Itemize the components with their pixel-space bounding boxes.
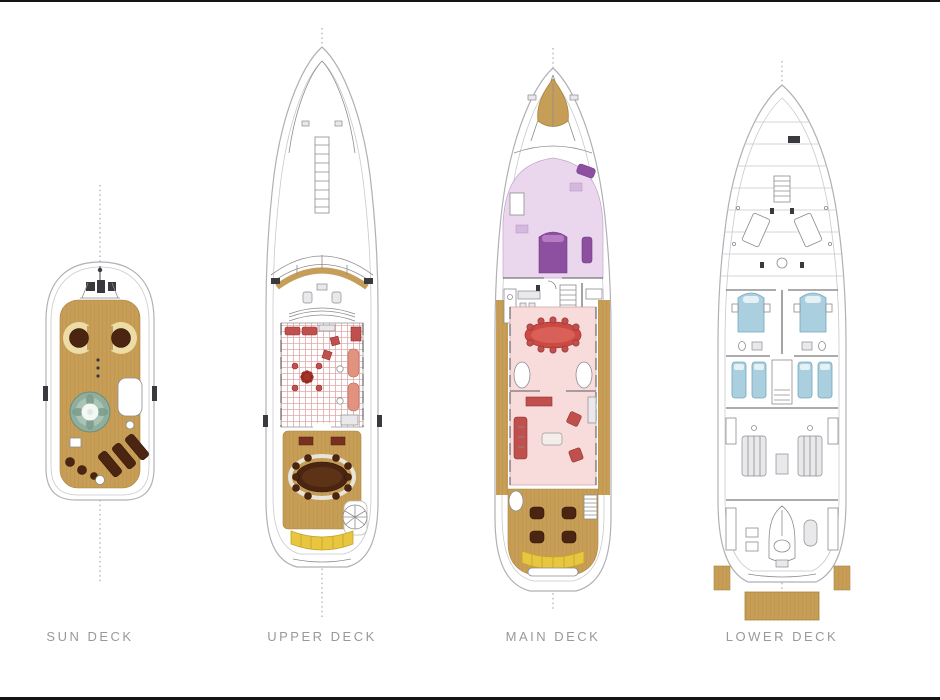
vip-cabins bbox=[726, 290, 838, 356]
skylounge bbox=[281, 323, 363, 430]
master-bed bbox=[539, 232, 567, 273]
gearbox bbox=[776, 454, 788, 474]
aft-deck bbox=[508, 489, 598, 576]
sideboard bbox=[299, 437, 313, 445]
main-deck-plan bbox=[470, 45, 635, 620]
transom-step bbox=[528, 568, 578, 576]
lobby-stairs bbox=[772, 360, 792, 404]
l-sofa bbox=[348, 383, 359, 411]
chair bbox=[330, 336, 340, 346]
sofa bbox=[302, 327, 317, 335]
l-sofa bbox=[348, 349, 359, 377]
sun-deck-plan bbox=[30, 180, 170, 605]
sideboard bbox=[576, 362, 592, 388]
aft-stairs bbox=[584, 495, 597, 519]
outboard-motor bbox=[776, 560, 788, 567]
deck-chair bbox=[530, 531, 544, 543]
deck-chair bbox=[562, 531, 576, 543]
sun-deck-label: SUN DECK bbox=[20, 629, 160, 647]
side-step bbox=[714, 566, 730, 590]
tv-cabinet bbox=[588, 397, 596, 423]
sideboard bbox=[514, 362, 530, 388]
deck-chair bbox=[562, 507, 576, 519]
deck-plan-sheet: SUN DECK bbox=[0, 0, 940, 700]
cabinet bbox=[351, 327, 361, 341]
master-stateroom bbox=[503, 158, 603, 278]
settee bbox=[582, 237, 592, 263]
jet-ski bbox=[804, 520, 817, 546]
upper-deck-label: UPPER DECK bbox=[252, 629, 392, 647]
deck-table bbox=[96, 476, 105, 485]
tv-cabinet bbox=[319, 325, 335, 331]
toilet bbox=[739, 342, 746, 351]
side-step bbox=[834, 566, 850, 590]
spiral-staircase bbox=[343, 501, 367, 535]
sideboard bbox=[331, 437, 345, 445]
sofa bbox=[285, 327, 300, 335]
top-border bbox=[0, 0, 940, 2]
toilet bbox=[819, 342, 826, 351]
salon-sofa bbox=[514, 417, 527, 459]
crew-stairs bbox=[774, 176, 790, 202]
staircase bbox=[560, 285, 576, 309]
coffee-table bbox=[542, 433, 562, 445]
bar bbox=[341, 415, 358, 425]
side-gate bbox=[43, 386, 48, 401]
upper-deck-plan bbox=[245, 25, 400, 625]
crew-mess-table bbox=[777, 258, 787, 268]
side-gate bbox=[152, 386, 157, 401]
deck-chair bbox=[530, 507, 544, 519]
vanity bbox=[510, 193, 524, 215]
lower-deck-label: LOWER DECK bbox=[712, 629, 852, 647]
door-opening bbox=[313, 423, 331, 430]
credenza bbox=[526, 397, 552, 406]
lower-deck-plan bbox=[690, 58, 870, 628]
main-deck-label: MAIN DECK bbox=[480, 629, 626, 647]
dining-and-salon bbox=[510, 307, 596, 485]
side-table bbox=[337, 366, 343, 372]
side-table bbox=[337, 398, 343, 404]
